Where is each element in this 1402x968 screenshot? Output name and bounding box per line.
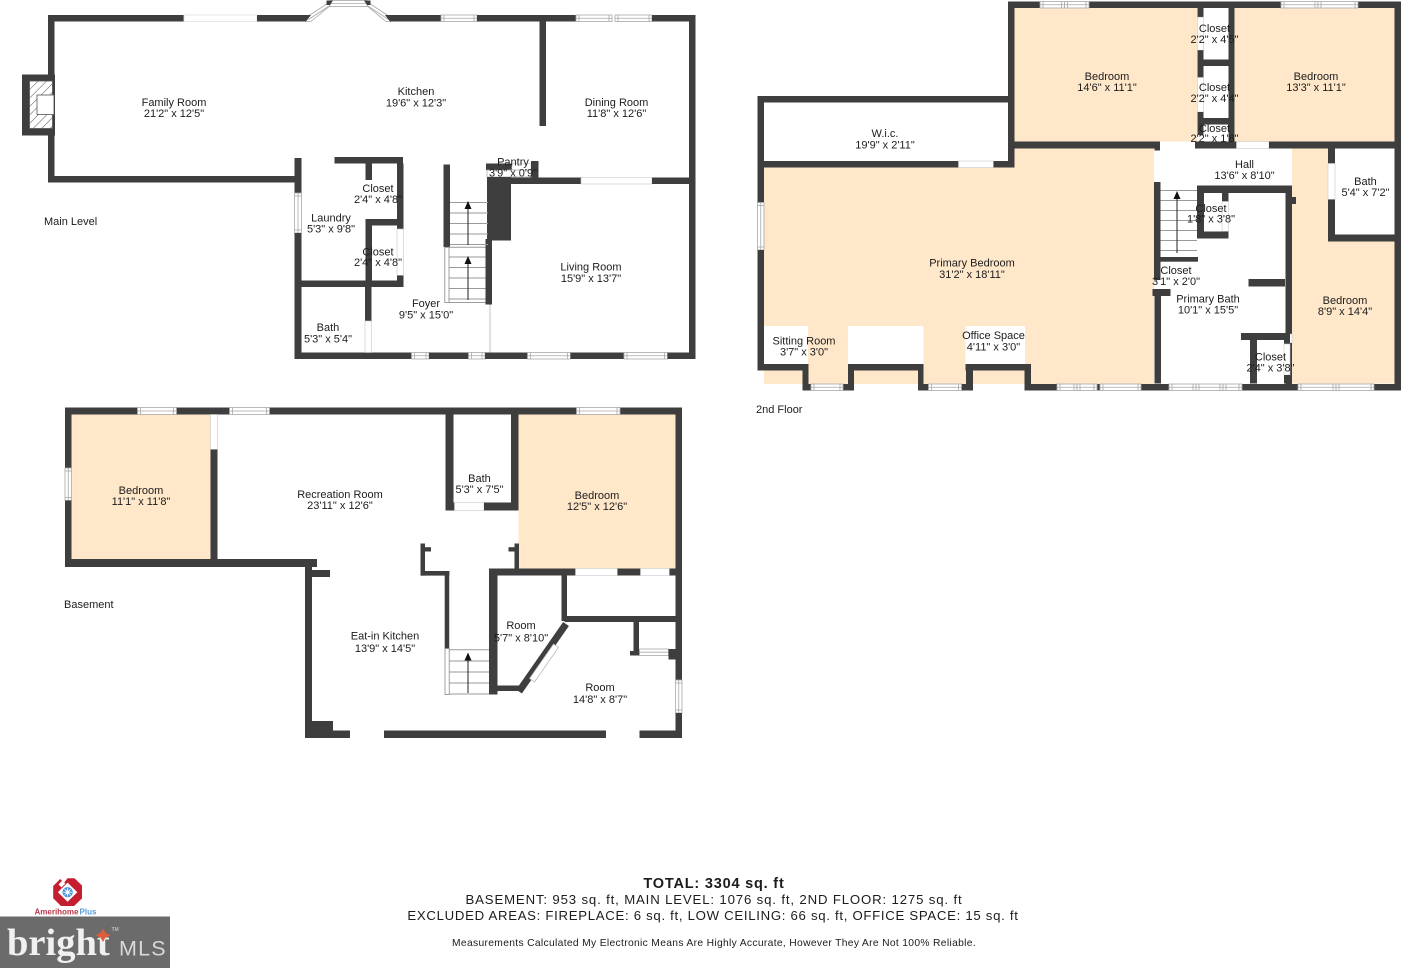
- svg-text:Bath: Bath: [317, 322, 340, 334]
- svg-text:Foyer: Foyer: [412, 298, 440, 310]
- svg-text:EXCLUDED AREAS: FIREPLACE: 6 s: EXCLUDED AREAS: FIREPLACE: 6 sq. ft, LOW…: [407, 908, 1018, 923]
- svg-text:5'3" x 7'5": 5'3" x 7'5": [455, 484, 503, 496]
- svg-text:2'2" x 1'8": 2'2" x 1'8": [1190, 133, 1238, 145]
- svg-text:9'5" x 15'0": 9'5" x 15'0": [399, 310, 453, 322]
- svg-text:11'8" x 12'6": 11'8" x 12'6": [587, 108, 647, 120]
- svg-text:3'1" x 2'0": 3'1" x 2'0": [1152, 276, 1200, 288]
- svg-text:3'9" x 0'9": 3'9" x 0'9": [489, 168, 537, 180]
- svg-text:5'7" x 8'10": 5'7" x 8'10": [494, 633, 548, 645]
- svg-text:MLS: MLS: [119, 937, 167, 961]
- svg-text:3'7" x 3'0": 3'7" x 3'0": [780, 347, 828, 359]
- svg-text:Room: Room: [585, 682, 614, 694]
- svg-text:10'1" x 15'5": 10'1" x 15'5": [1178, 305, 1238, 317]
- svg-text:23'11" x 12'6": 23'11" x 12'6": [307, 500, 373, 512]
- svg-text:15'9" x 13'7": 15'9" x 13'7": [561, 273, 621, 285]
- svg-text:14'6" x 11'1": 14'6" x 11'1": [1077, 82, 1137, 94]
- svg-text:2'2" x 4'5": 2'2" x 4'5": [1190, 34, 1238, 46]
- svg-text:Living Room: Living Room: [560, 262, 621, 274]
- svg-text:4'11" x 3'0": 4'11" x 3'0": [967, 342, 1020, 354]
- svg-text:Main Level: Main Level: [44, 216, 97, 228]
- svg-text:2'4" x 4'8": 2'4" x 4'8": [354, 257, 402, 269]
- svg-text:Basement: Basement: [64, 599, 114, 611]
- svg-text:TOTAL: 3304 sq. ft: TOTAL: 3304 sq. ft: [643, 876, 784, 892]
- svg-text:13'9" x 14'5": 13'9" x 14'5": [355, 643, 415, 655]
- svg-text:8'9" x 14'4": 8'9" x 14'4": [1318, 306, 1372, 318]
- svg-text:Family Room: Family Room: [142, 97, 207, 109]
- svg-text:2nd Floor: 2nd Floor: [756, 404, 803, 416]
- svg-text:Plus: Plus: [80, 908, 97, 917]
- svg-text:13'3" x 11'1": 13'3" x 11'1": [1286, 82, 1346, 94]
- svg-text:12'5" x 12'6": 12'5" x 12'6": [567, 501, 627, 513]
- svg-text:21'2" x 12'5": 21'2" x 12'5": [144, 108, 204, 120]
- svg-text:2'4" x 4'8": 2'4" x 4'8": [354, 194, 402, 206]
- svg-text:TM: TM: [112, 927, 119, 933]
- svg-text:2'2" x 4'4": 2'2" x 4'4": [1190, 93, 1238, 105]
- svg-text:13'6" x 8'10": 13'6" x 8'10": [1214, 170, 1274, 182]
- svg-text:5'3" x 9'8": 5'3" x 9'8": [307, 224, 355, 236]
- svg-text:19'6" x 12'3": 19'6" x 12'3": [386, 98, 446, 110]
- svg-text:5'4" x 7'2": 5'4" x 7'2": [1341, 187, 1389, 199]
- svg-text:bright: bright: [7, 922, 110, 964]
- svg-text:31'2" x 18'11": 31'2" x 18'11": [939, 269, 1005, 281]
- svg-text:5'3" x 5'4": 5'3" x 5'4": [304, 334, 352, 346]
- svg-text:14'8" x 8'7": 14'8" x 8'7": [573, 694, 627, 706]
- svg-text:Eat-in Kitchen: Eat-in Kitchen: [351, 631, 419, 643]
- svg-text:Office Space: Office Space: [962, 330, 1025, 342]
- svg-text:Measurements Calculated My Ele: Measurements Calculated My Electronic Me…: [452, 938, 976, 949]
- svg-text:Kitchen: Kitchen: [398, 86, 435, 98]
- svg-text:1'8" x 3'8": 1'8" x 3'8": [1187, 214, 1235, 226]
- svg-text:BASEMENT: 953 sq. ft, MAIN LEV: BASEMENT: 953 sq. ft, MAIN LEVEL: 1076 s…: [466, 892, 963, 907]
- svg-text:19'9" x 2'11": 19'9" x 2'11": [855, 140, 915, 152]
- svg-text:W.i.c.: W.i.c.: [872, 128, 899, 140]
- svg-text:Primary Bedroom: Primary Bedroom: [929, 258, 1015, 270]
- svg-text:Amerihome: Amerihome: [34, 908, 79, 917]
- svg-text:Room: Room: [506, 620, 535, 632]
- svg-text:2'4" x 3'8": 2'4" x 3'8": [1246, 363, 1294, 375]
- svg-text:11'1" x 11'8": 11'1" x 11'8": [112, 496, 171, 508]
